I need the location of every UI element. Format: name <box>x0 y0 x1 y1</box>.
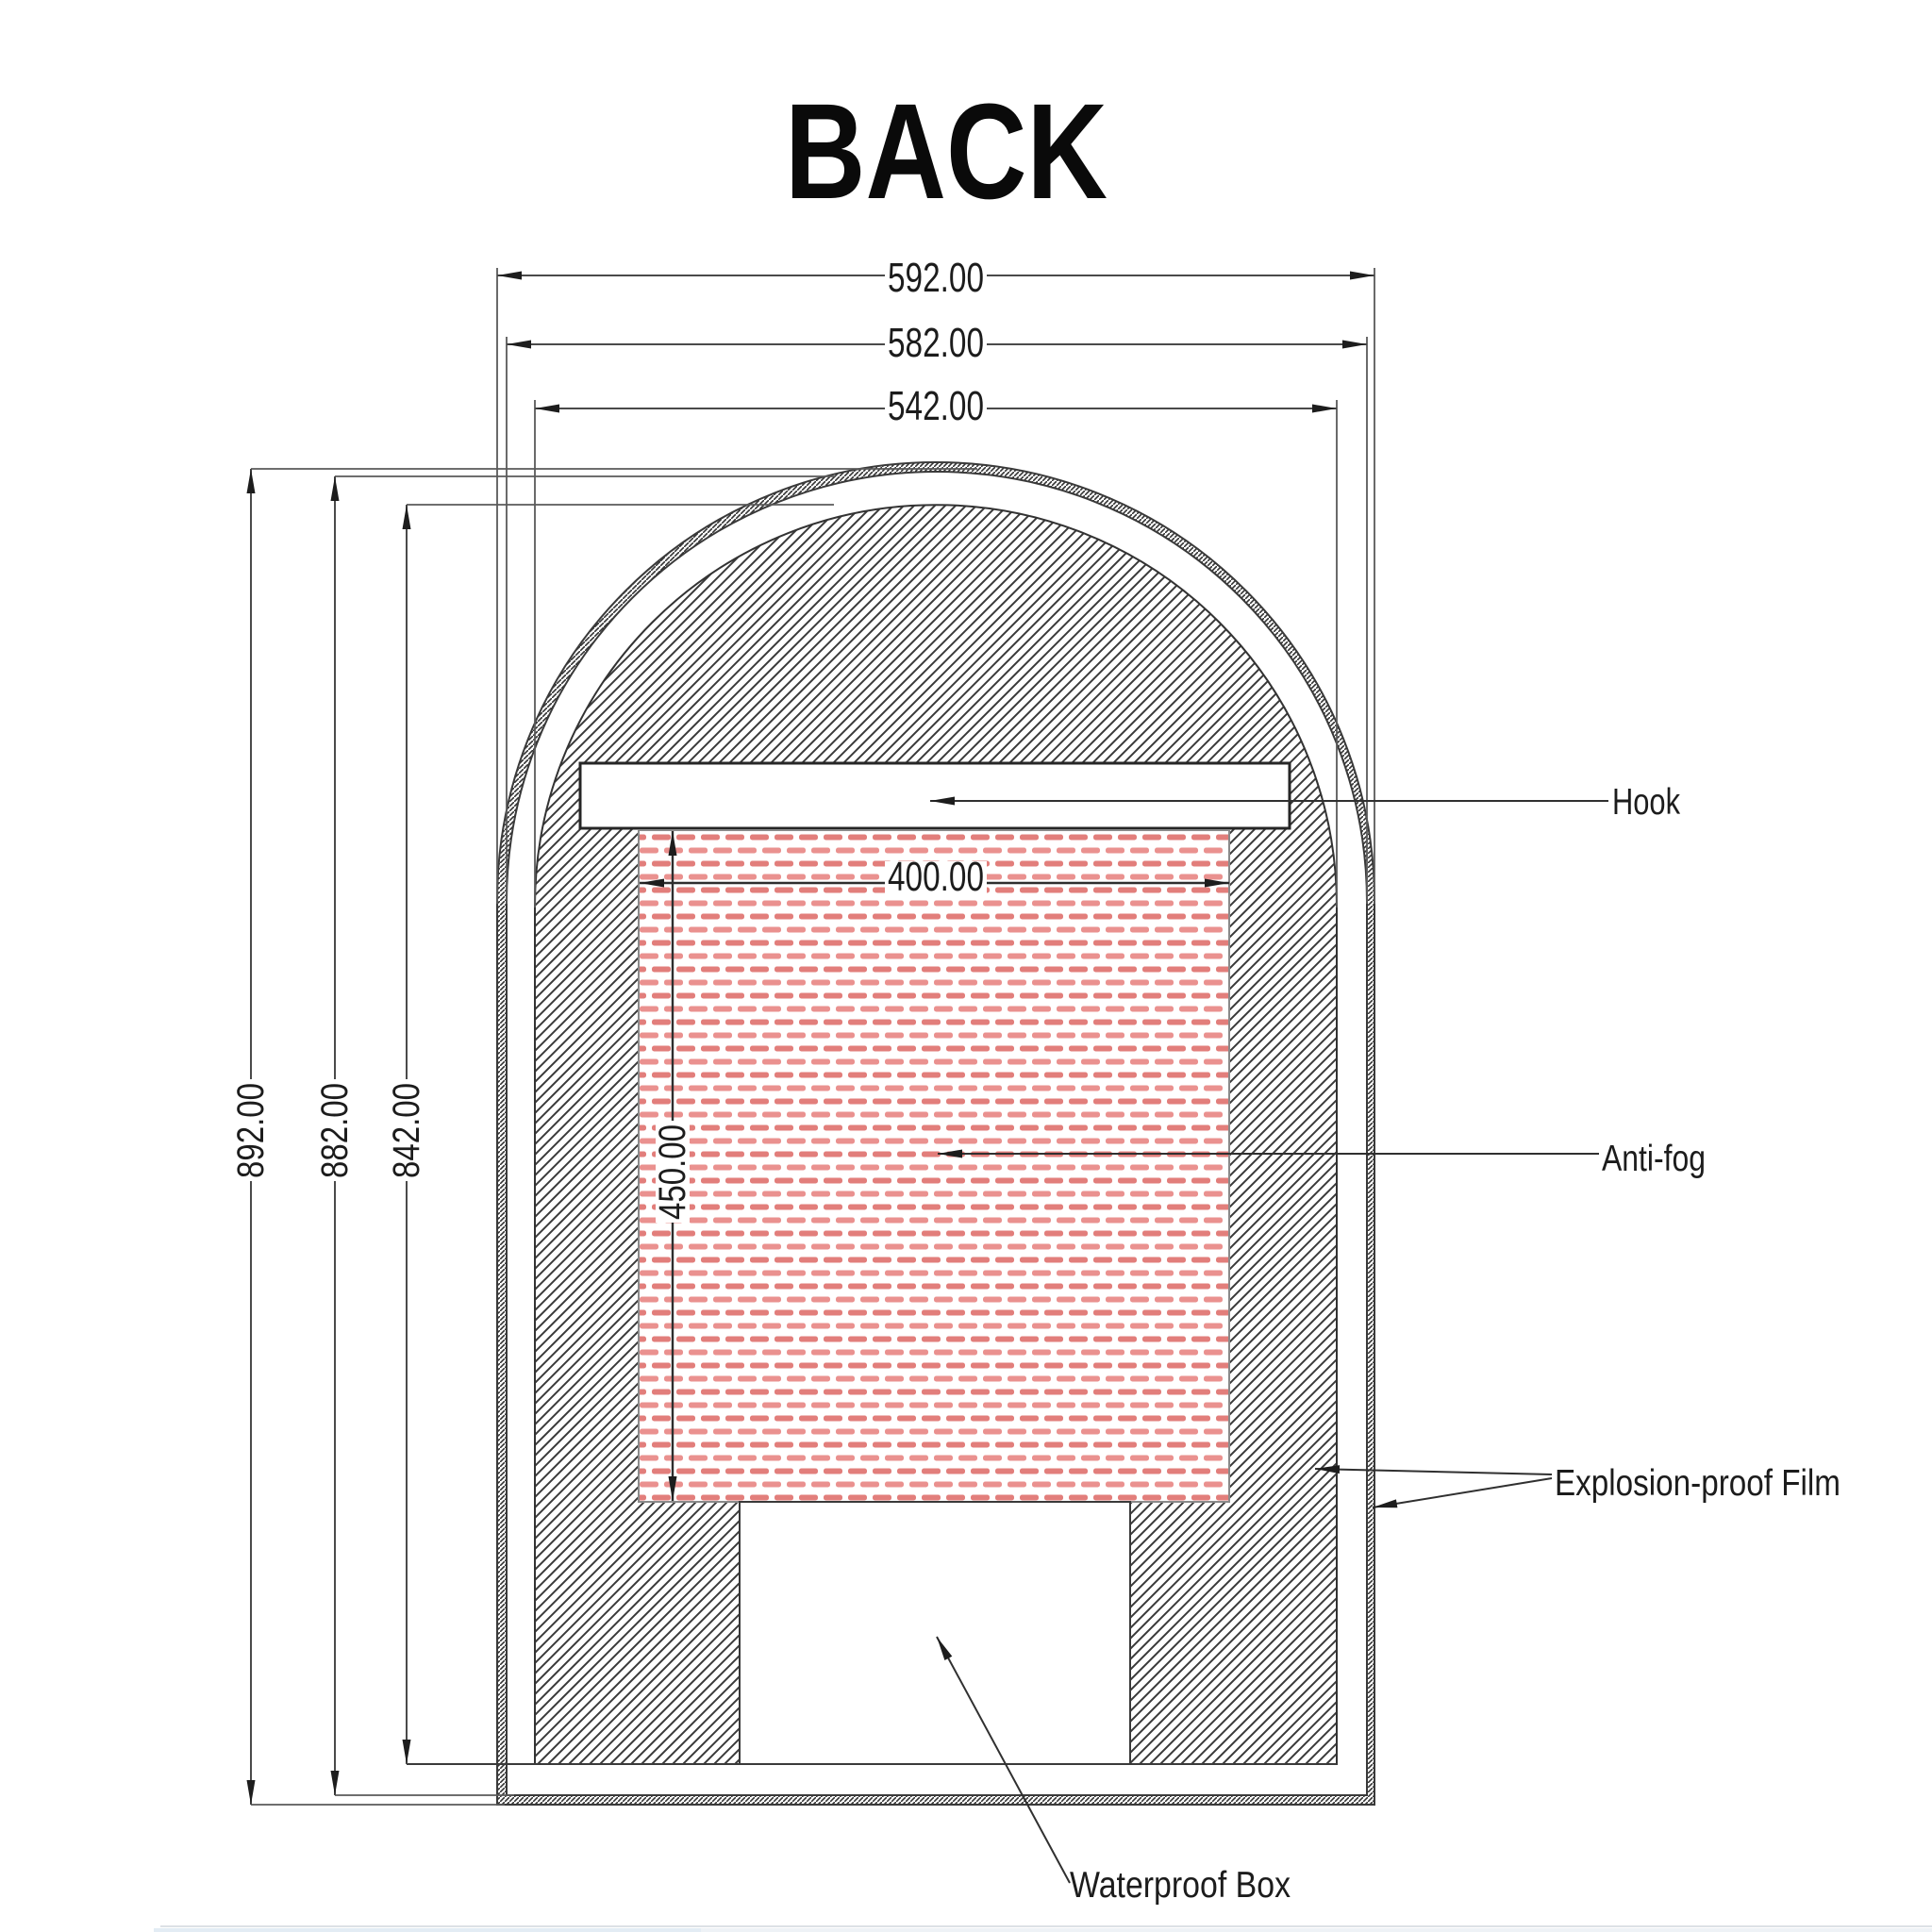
svg-text:450.00: 450.00 <box>652 1124 693 1220</box>
svg-text:892.00: 892.00 <box>230 1083 272 1178</box>
svg-text:882.00: 882.00 <box>314 1083 356 1178</box>
svg-text:Explosion-proof Film: Explosion-proof Film <box>1555 1463 1840 1504</box>
svg-text:400.00: 400.00 <box>888 854 984 900</box>
svg-text:Anti-fog: Anti-fog <box>1602 1139 1706 1179</box>
svg-text:582.00: 582.00 <box>888 320 984 366</box>
svg-text:542.00: 542.00 <box>888 383 984 429</box>
svg-text:BACK: BACK <box>785 75 1108 227</box>
svg-text:Hook: Hook <box>1612 782 1680 823</box>
svg-text:Waterproof Box: Waterproof Box <box>1070 1865 1291 1906</box>
svg-text:592.00: 592.00 <box>888 255 984 301</box>
svg-text:842.00: 842.00 <box>386 1083 427 1178</box>
